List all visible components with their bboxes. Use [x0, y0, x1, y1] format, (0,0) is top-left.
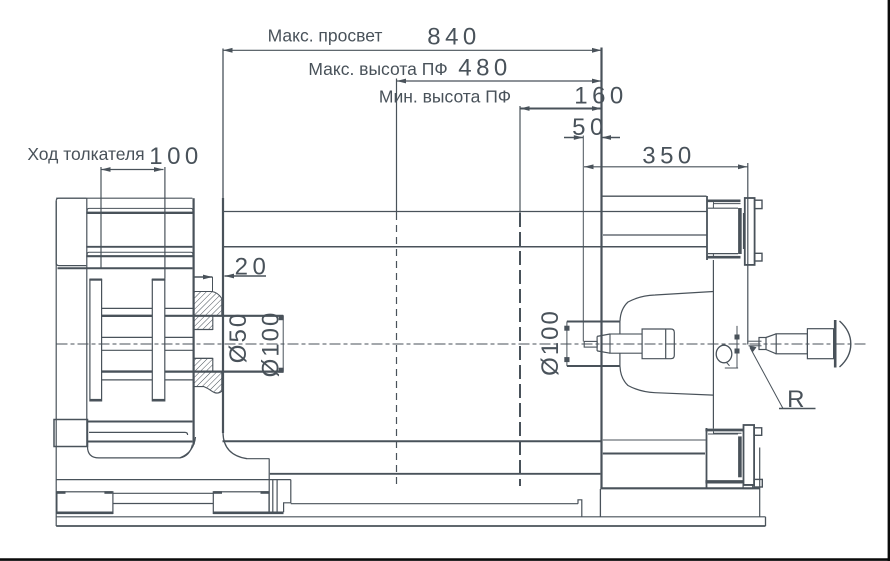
svg-text:Мин. высота ПФ: Мин. высота ПФ [379, 87, 511, 107]
svg-text:Ход толкателя: Ход толкателя [27, 144, 144, 164]
svg-text:Ø50: Ø50 [225, 312, 252, 363]
svg-text:Макс. просвет: Макс. просвет [268, 26, 383, 46]
svg-text:50: 50 [572, 114, 608, 141]
svg-text:R: R [787, 386, 809, 413]
svg-text:20: 20 [235, 254, 271, 281]
svg-text:Макс. высота ПФ: Макс. высота ПФ [308, 59, 447, 79]
svg-text:Ø100: Ø100 [537, 309, 564, 376]
svg-text:350: 350 [642, 143, 696, 170]
svg-text:840: 840 [427, 24, 481, 51]
svg-text:100: 100 [149, 143, 203, 170]
svg-text:Ø100: Ø100 [258, 311, 285, 378]
svg-text:160: 160 [574, 83, 628, 110]
svg-text:480: 480 [458, 55, 512, 82]
